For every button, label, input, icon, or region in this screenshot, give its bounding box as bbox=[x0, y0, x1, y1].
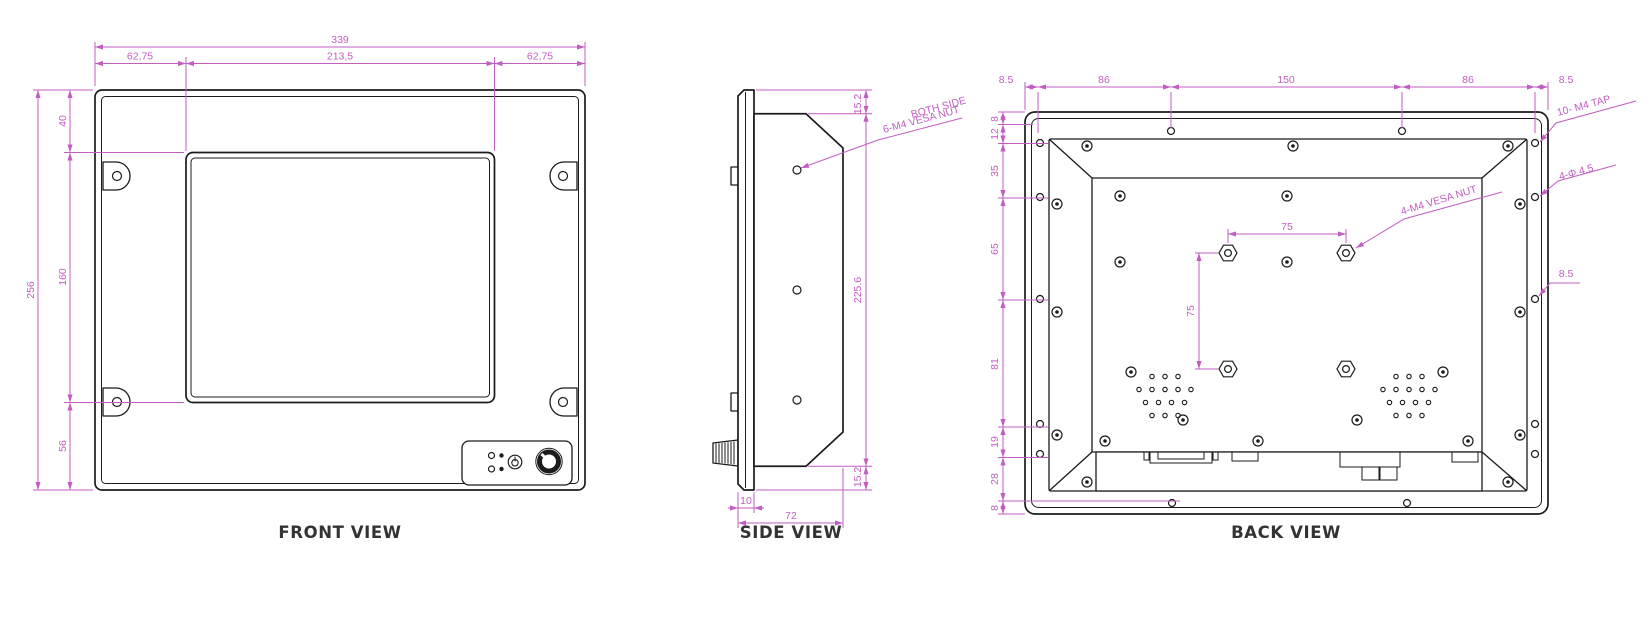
control-knob-icon bbox=[536, 448, 562, 474]
status-led-icon bbox=[489, 453, 495, 459]
vesa-hole-icon bbox=[793, 396, 801, 404]
side-view-caption: SIDE VIEW bbox=[740, 523, 843, 542]
dim-back-left-1: 12 bbox=[989, 128, 1001, 140]
dim-front-left-margin: 62,75 bbox=[127, 51, 153, 63]
dim-front-top-margin: 40 bbox=[57, 115, 69, 127]
mounting-ear-icon bbox=[103, 162, 130, 190]
dim-back-left-2: 35 bbox=[989, 165, 1001, 177]
dim-back-left-3: 65 bbox=[989, 243, 1001, 255]
dim-front-bottom-margin: 56 bbox=[57, 440, 69, 452]
dim-side-top: 15.2 bbox=[852, 94, 864, 115]
dim-back-top-1: 86 bbox=[1098, 74, 1110, 86]
technical-drawing-page: 339 62,75 213,5 62,75 256 40 160 56 bbox=[0, 0, 1650, 617]
dim-front-total-height: 256 bbox=[25, 281, 37, 299]
dim-back-top-0: 8.5 bbox=[999, 74, 1014, 86]
front-view-caption: FRONT VIEW bbox=[278, 523, 401, 542]
status-led-icon bbox=[499, 467, 503, 471]
dim-vesa-width: 75 bbox=[1281, 221, 1293, 233]
vesa-hole-icon bbox=[793, 166, 801, 174]
status-led-icon bbox=[499, 453, 503, 457]
back-view: 8.5 86 150 86 8.5 8 12 3 bbox=[989, 74, 1636, 514]
dim-side-bezel-depth: 10 bbox=[740, 495, 752, 507]
dim-back-left-6: 28 bbox=[989, 473, 1001, 485]
dim-back-top-3: 86 bbox=[1462, 74, 1474, 86]
side-view: 15.2 225.6 15.2 BOTH SIDE 6-M4 VESA NUT … bbox=[713, 90, 967, 528]
back-view-caption: BACK VIEW bbox=[1231, 523, 1341, 542]
dim-front-screen-height: 160 bbox=[57, 268, 69, 286]
cable-gland bbox=[713, 440, 738, 466]
dim-back-left-0: 8 bbox=[989, 116, 1001, 122]
dim-edge-offset: 8.5 bbox=[1559, 268, 1574, 280]
dim-back-top-2: 150 bbox=[1277, 74, 1295, 86]
dim-back-left-4: 81 bbox=[989, 358, 1001, 370]
vesa-hole-icon bbox=[793, 286, 801, 294]
dim-side-total-depth: 72 bbox=[785, 510, 797, 522]
front-control-panel bbox=[462, 441, 572, 485]
back-labels-right: 10- M4 TAP 4-Φ 4.5 8.5 bbox=[1539, 93, 1636, 296]
status-led-icon bbox=[489, 466, 495, 472]
mounting-ear-icon bbox=[550, 388, 577, 416]
front-view: 339 62,75 213,5 62,75 256 40 160 56 bbox=[25, 34, 585, 490]
dim-front-right-margin: 62,75 bbox=[527, 51, 553, 63]
dim-front-screen-width: 213,5 bbox=[327, 51, 353, 63]
io-recess bbox=[1096, 452, 1482, 491]
back-panel-recess bbox=[1092, 178, 1482, 452]
dim-side-bottom: 15.2 bbox=[852, 467, 864, 488]
dim-front-total-width: 339 bbox=[331, 34, 349, 46]
dim-back-top-4: 8.5 bbox=[1559, 74, 1574, 86]
dim-side-body: 225.6 bbox=[852, 277, 864, 303]
mounting-ear-icon bbox=[550, 162, 577, 190]
dim-back-left-7: 8 bbox=[989, 505, 1001, 511]
io-connector-area bbox=[1096, 452, 1482, 491]
power-button-icon bbox=[508, 455, 522, 469]
screen-outline bbox=[186, 153, 495, 403]
dim-back-left-5: 19 bbox=[989, 436, 1001, 448]
panel-pc-drawing: 339 62,75 213,5 62,75 256 40 160 56 bbox=[0, 0, 1650, 617]
dim-vesa-height: 75 bbox=[1185, 305, 1197, 317]
